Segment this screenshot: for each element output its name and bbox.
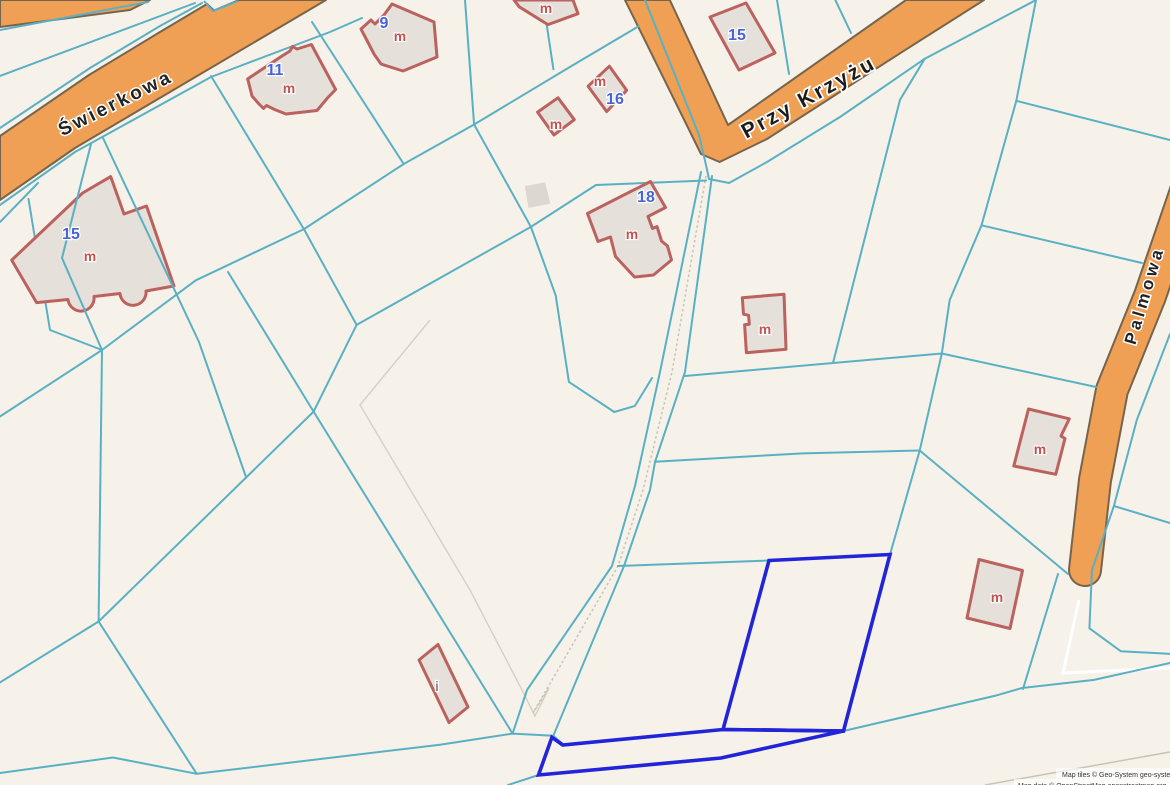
svg-text:m: m [550, 116, 562, 132]
svg-text:m: m [594, 73, 606, 89]
svg-text:15: 15 [728, 27, 746, 44]
svg-text:9: 9 [380, 15, 389, 32]
svg-text:i: i [435, 678, 439, 694]
svg-text:m: m [1034, 441, 1046, 457]
svg-text:m: m [626, 226, 638, 242]
svg-text:m: m [84, 248, 96, 264]
svg-text:15: 15 [62, 226, 80, 243]
svg-text:m: m [991, 589, 1003, 605]
svg-text:m: m [540, 0, 552, 16]
svg-text:Map tiles © Geo-System geo-sys: Map tiles © Geo-System geo-system [1062, 771, 1170, 779]
svg-text:m: m [394, 28, 406, 44]
svg-text:16: 16 [606, 91, 624, 108]
svg-text:11: 11 [267, 62, 284, 79]
svg-text:m: m [283, 80, 295, 96]
svg-text:m: m [759, 321, 771, 337]
svg-text:18: 18 [637, 189, 655, 206]
